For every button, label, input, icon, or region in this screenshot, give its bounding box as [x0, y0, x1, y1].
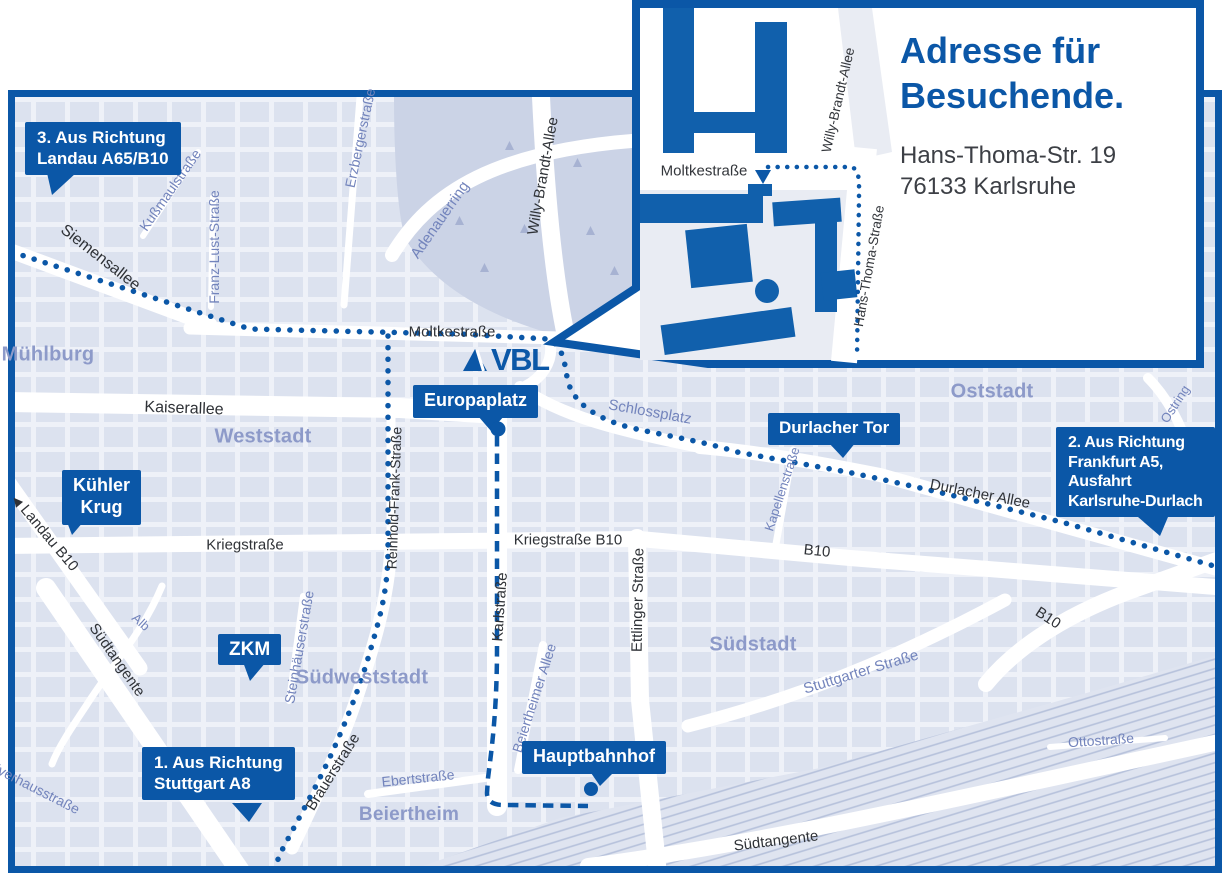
karlsruhe-directions-map: Siemensallee Kußmaulstraße Franz-Lust-St…	[0, 0, 1230, 874]
inset-title-line2: Besuchende.	[900, 73, 1124, 118]
inset-address-line1: Hans-Thoma-Str. 19	[900, 140, 1116, 171]
inset-address-line2: 76133 Karlsruhe	[900, 171, 1116, 202]
inset-street-label-moltkestrasse: Moltkestraße	[661, 163, 748, 180]
inset-address: Hans-Thoma-Str. 19 76133 Karlsruhe	[900, 140, 1116, 202]
inset-callout-graphics	[0, 0, 1230, 874]
inset-title: Adresse für Besuchende.	[900, 28, 1124, 118]
inset-title-line1: Adresse für	[900, 28, 1124, 73]
